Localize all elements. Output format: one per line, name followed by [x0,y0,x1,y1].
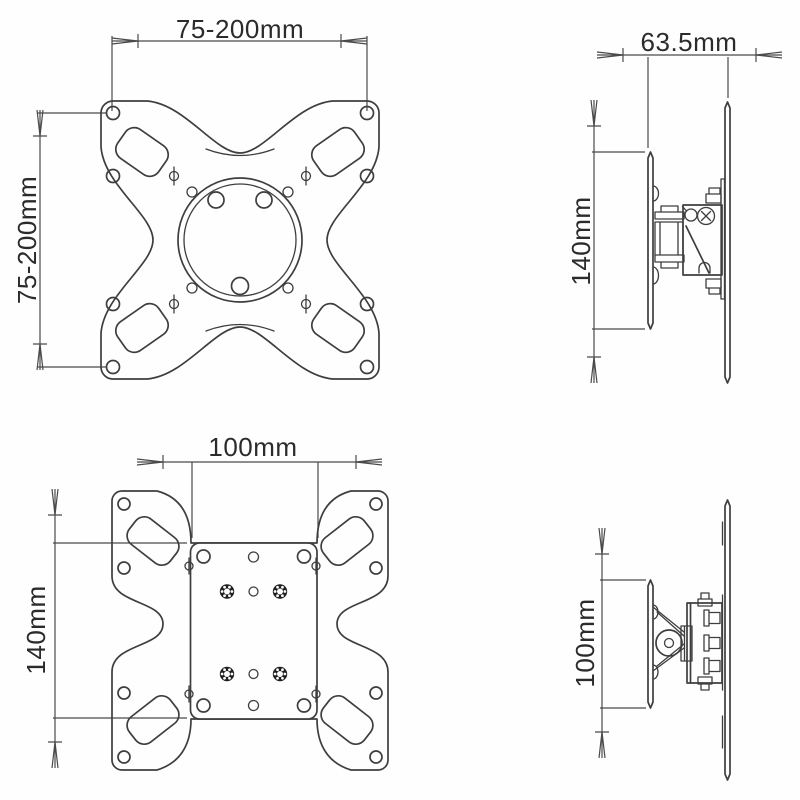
extension-lines [192,462,318,538]
center-hole [256,192,272,208]
mounting-hole [118,687,130,699]
mount-side-profile-upper [648,102,730,383]
bracket-outline [101,101,379,379]
bolt-head [704,635,720,651]
mounting-hole [370,751,382,763]
bottom-screw [698,677,712,690]
small-hole [283,187,293,197]
mounting-hole [118,562,130,574]
vesa-threaded-hole [220,667,234,681]
butterfly-bracket-200 [101,101,379,379]
dimension-height-left: 75-200mm [12,110,106,370]
mounting-hole [361,361,374,374]
center-hole [232,278,249,295]
extension-lines [648,57,728,148]
center-boss [178,178,302,302]
front-view-vesa-100: 100mm 140mm [21,432,388,770]
dim-label-depth: 63.5mm [641,27,738,57]
lobe-cutout [111,123,172,180]
boss-inner-circle [184,184,296,296]
flange-fold-arcs [206,149,274,331]
dimension-and-extension-lines [600,528,646,758]
dim-label-height-side-lower: 100mm [570,598,600,687]
corner-lobe-bottom-left [118,687,183,763]
dimension-height-side-lower: 100mm [570,528,646,758]
vesa-threaded-hole [273,584,287,598]
pivot-pin [665,639,674,648]
wall-plate-edge [725,500,730,780]
corner-lobe-bottom-right [302,295,374,374]
mounting-hole [118,751,130,763]
wall-bolts [706,188,721,294]
dim-label-width-bottom: 100mm [208,432,297,462]
lobe-cutout [307,299,368,356]
lobe-cutout [111,299,172,356]
bolt-head [704,610,720,626]
screw-cross [702,212,711,221]
vesa-center-plate [191,543,318,719]
top-screw [698,593,712,606]
lobe-cutout [317,691,378,748]
lobe-cutout [307,123,368,180]
clamp-assembly [655,206,684,268]
plate-body [191,543,318,719]
dimension-depth: 63.5mm [597,27,782,148]
vesa-threaded-hole [273,667,287,681]
corner-lobe-top-left [118,498,183,574]
mounting-hole [361,298,374,311]
side-view-lower: 100mm [570,500,730,780]
mounting-hole [107,107,120,120]
mounting-hole [370,498,382,510]
drawing-canvas: 75-200mm 75-200mm [0,0,800,800]
small-hole [187,187,197,197]
dimension-height-side-upper: 140mm [566,100,645,383]
lobe-cutout [123,691,184,748]
corner-lobe-bottom-left [107,295,179,374]
side-view-upper: 63.5mm 140mm [566,27,782,383]
corner-lobe-top-left [107,107,179,186]
center-hole [208,192,224,208]
mounting-hole [361,170,374,183]
mounting-hole [107,361,120,374]
tv-plate-edge [648,152,653,329]
small-hole [187,283,197,293]
boss-outer-circle [178,178,302,302]
mounting-hole [118,498,130,510]
front-view-vesa-200: 75-200mm 75-200mm [12,14,379,379]
dim-label-width-top: 75-200mm [176,14,304,44]
bolt-head [704,658,720,674]
extension-lines [38,113,106,367]
vesa-threaded-hole [220,584,234,598]
pivot-joint [656,630,682,656]
corner-lobe-top-right [317,498,382,574]
wall-plate-edge [725,102,730,383]
small-hole [283,283,293,293]
dimension-width-top: 75-200mm [112,14,367,111]
dim-label-height-side-upper: 140mm [566,196,596,285]
corner-lobe-top-right [302,107,374,186]
butterfly-bracket-100 [112,491,388,770]
dimension-and-extension-lines [592,100,645,383]
dim-label-height-left: 75-200mm [12,176,42,304]
technical-drawing-page: 75-200mm 75-200mm [0,0,800,800]
mounting-hole [370,687,382,699]
lobe-cutout [317,512,378,569]
dim-label-height-bottom-left: 140mm [21,585,51,674]
mounting-hole [370,562,382,574]
pivot-slot [685,209,697,221]
mounting-hole [107,170,120,183]
lobe-cutout [123,512,184,569]
corner-lobe-bottom-right [317,687,382,763]
mount-side-profile-lower [648,500,730,780]
tv-plate-edge [648,580,653,708]
extension-lines [112,36,367,111]
mounting-hole [107,298,120,311]
tilt-bracket-body [683,205,722,275]
